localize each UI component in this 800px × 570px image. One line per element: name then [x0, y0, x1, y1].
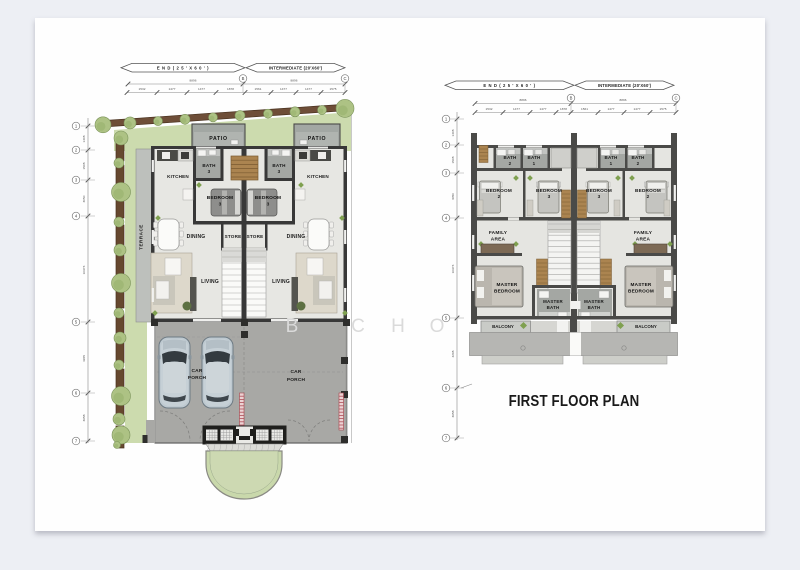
svg-text:BATH: BATH	[272, 163, 286, 168]
svg-text:1878: 1878	[227, 87, 234, 91]
svg-text:H: H	[391, 316, 405, 337]
svg-text:1561: 1561	[255, 87, 262, 91]
svg-text:CAR: CAR	[291, 369, 302, 375]
svg-text:3: 3	[278, 169, 281, 174]
svg-text:1532: 1532	[486, 107, 493, 111]
svg-text:TERRACE: TERRACE	[139, 224, 144, 250]
svg-text:3: 3	[208, 169, 211, 174]
svg-text:O: O	[430, 316, 445, 337]
svg-text:MASTER: MASTER	[497, 282, 518, 287]
svg-text:BEDROOM: BEDROOM	[586, 188, 612, 193]
svg-text:BATH: BATH	[547, 305, 560, 310]
svg-text:1561: 1561	[581, 107, 588, 111]
svg-text:PORCH: PORCH	[287, 377, 306, 383]
svg-text:2: 2	[647, 194, 650, 199]
svg-text:BEDROOM: BEDROOM	[255, 195, 281, 201]
svg-text:1477: 1477	[305, 87, 312, 91]
svg-text:1878: 1878	[560, 107, 567, 111]
svg-text:8896: 8896	[520, 98, 527, 102]
svg-text:3658: 3658	[82, 414, 86, 421]
svg-text:4265: 4265	[451, 350, 455, 357]
svg-text:8896: 8896	[291, 79, 298, 83]
svg-text:MASTER: MASTER	[631, 282, 652, 287]
svg-text:1575: 1575	[660, 107, 667, 111]
svg-text:8896: 8896	[620, 98, 627, 102]
svg-text:BEDROOM: BEDROOM	[628, 289, 654, 294]
svg-text:BEDROOM: BEDROOM	[486, 188, 512, 193]
svg-text:AREA: AREA	[491, 237, 506, 243]
svg-text:C: C	[351, 316, 365, 337]
svg-text:CAR: CAR	[192, 368, 203, 374]
svg-text:1477: 1477	[608, 107, 615, 111]
svg-text:1477: 1477	[280, 87, 287, 91]
svg-text:3050: 3050	[451, 193, 455, 200]
svg-text:1: 1	[610, 161, 613, 166]
svg-text:B: B	[286, 316, 299, 337]
svg-text:BEDROOM: BEDROOM	[207, 195, 233, 201]
svg-text:MASTER: MASTER	[584, 299, 604, 304]
svg-text:8896: 8896	[190, 79, 197, 83]
svg-text:1508: 1508	[451, 156, 455, 163]
svg-text:1532: 1532	[139, 87, 146, 91]
svg-text:BALCONY: BALCONY	[635, 324, 657, 329]
svg-text:1575: 1575	[330, 87, 337, 91]
svg-text:STORE: STORE	[247, 234, 264, 239]
svg-text:1508: 1508	[82, 162, 86, 169]
svg-text:BEDROOM: BEDROOM	[635, 188, 661, 193]
svg-text:FIRST FLOOR PLAN: FIRST FLOOR PLAN	[509, 393, 640, 410]
svg-text:3658: 3658	[451, 410, 455, 417]
svg-text:BATH: BATH	[605, 155, 618, 160]
svg-text:DINING: DINING	[287, 234, 306, 240]
svg-text:1477: 1477	[513, 107, 520, 111]
svg-text:1477: 1477	[634, 107, 641, 111]
svg-text:BEDROOM: BEDROOM	[536, 188, 562, 193]
svg-text:BATH: BATH	[588, 305, 601, 310]
svg-text:3: 3	[219, 202, 222, 208]
svg-text:B: B	[242, 76, 245, 81]
svg-text:BATH: BATH	[528, 155, 541, 160]
svg-text:1408: 1408	[82, 135, 86, 142]
svg-text:BATH: BATH	[632, 155, 645, 160]
svg-text:MASTER: MASTER	[543, 299, 563, 304]
svg-text:2: 2	[498, 194, 501, 199]
svg-text:PATIO: PATIO	[308, 136, 327, 142]
svg-text:BEDROOM: BEDROOM	[494, 289, 520, 294]
svg-text:10973: 10973	[82, 265, 86, 274]
svg-text:BATH: BATH	[504, 155, 517, 160]
svg-text:C: C	[674, 96, 677, 101]
svg-text:AREA: AREA	[636, 237, 651, 243]
svg-text:3: 3	[548, 194, 551, 199]
svg-text:LIVING: LIVING	[272, 279, 290, 285]
svg-text:LIVING: LIVING	[201, 279, 219, 285]
svg-text:E N D ( 2 5 ' X 6 0 ' ): E N D ( 2 5 ' X 6 0 ' )	[157, 65, 209, 70]
svg-text:PORCH: PORCH	[188, 375, 207, 381]
svg-text:1: 1	[533, 161, 536, 166]
svg-text:DINING: DINING	[187, 234, 206, 240]
svg-text:INTERMEDIATE (20'X60'): INTERMEDIATE (20'X60')	[598, 83, 652, 88]
svg-text:4265: 4265	[82, 355, 86, 362]
svg-text:E N D ( 2 5 ' X 6 0 ' ): E N D ( 2 5 ' X 6 0 ' )	[483, 83, 535, 88]
svg-text:INTERMEDIATE (20'X60'): INTERMEDIATE (20'X60')	[269, 65, 323, 70]
svg-text:1477: 1477	[198, 87, 205, 91]
svg-text:B: B	[570, 96, 573, 101]
svg-text:BALCONY: BALCONY	[492, 324, 514, 329]
svg-text:C: C	[343, 76, 346, 81]
svg-text:3: 3	[267, 202, 270, 208]
svg-text:10973: 10973	[451, 264, 455, 273]
svg-text:1477: 1477	[169, 87, 176, 91]
svg-text:3050: 3050	[82, 195, 86, 202]
svg-text:KITCHEN: KITCHEN	[307, 174, 329, 179]
svg-text:1477: 1477	[540, 107, 547, 111]
svg-text:PATIO: PATIO	[209, 136, 228, 142]
svg-text:3: 3	[598, 194, 601, 199]
svg-text:2: 2	[509, 161, 512, 166]
svg-text:1408: 1408	[451, 129, 455, 136]
svg-text:BATH: BATH	[202, 163, 216, 168]
svg-text:KITCHEN: KITCHEN	[167, 174, 189, 179]
svg-text:2: 2	[637, 161, 640, 166]
svg-text:FAMILY: FAMILY	[634, 230, 653, 236]
svg-text:FAMILY: FAMILY	[489, 230, 508, 236]
svg-text:STORE: STORE	[225, 234, 242, 239]
